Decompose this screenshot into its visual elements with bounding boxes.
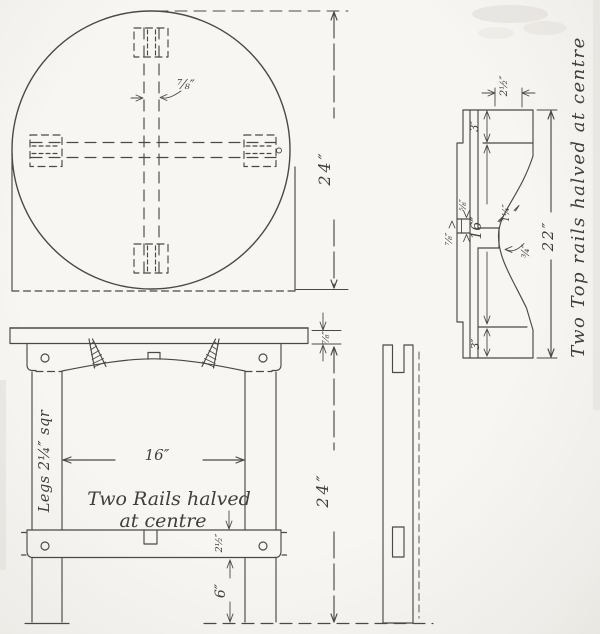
front-lower-rail-width-label: 2½″ [214,533,225,553]
rail-end-width-dim: 2½″ [482,76,535,107]
plan-diameter-dim: 24″ [156,11,348,290]
rail-thickness-label: ⅞″ [444,232,455,245]
leg-mortise [393,527,405,557]
front-top-board [10,328,308,344]
plan-cross-rails [31,28,276,272]
front-view: ⅞″ 24″ 16″ Two Rails halved at centre Le… [10,313,433,624]
front-leg-height-dim: 24″ [313,347,337,622]
front-leg-spacing-label: 16″ [145,446,170,464]
front-top-rail [27,344,281,372]
rail-detail-length-dims: 3″ 16″ 3″ [468,111,490,356]
front-lower-rail-width-dim: 2½″ [214,511,232,553]
plan-rail-thickness-dim: ⅞″ [131,78,195,101]
front-rails-note-line1: Two Rails halved [87,488,251,510]
plan-leg-squares [30,28,282,273]
table-working-drawing: ⅞″ 24″ [0,0,600,634]
front-lower-rail [22,530,287,558]
screw-hole [41,542,49,550]
rail-notch-width-label: 1¼″ [501,203,512,221]
rail-overall-dim: 22″ [537,110,557,358]
front-rail-floor-dim: 6″ [213,560,233,622]
rail-notch-depth-label: ¾″ [521,244,532,258]
rail-end-width-label: 2½″ [498,76,510,98]
rail-detail-view: 3″ 16″ 3″ 2½″ [444,36,589,358]
rail-notch-depth-dim: ¾″ [505,244,532,258]
front-leg-spacing-dim: 16″ [63,446,244,464]
rail-notch-width-dim: 1¼″ [498,203,519,222]
table-top-circle [12,11,290,289]
front-leg-height-label: 24″ [313,472,332,508]
front-top-thickness-label: ⅞″ [321,331,332,344]
rail-halving-label: ⅝″ [459,198,469,211]
front-rails-note-line2: at centre [119,510,206,532]
front-rail-floor-label: 6″ [213,583,229,598]
screw-hole [259,354,267,362]
screw-hole [259,542,267,550]
plan-diameter-label: 24″ [315,150,334,186]
rail-detail-caption: Two Top rails halved at centre [568,36,589,357]
rail-thickness-dim: ⅞″ [444,221,455,245]
front-legs-note: Legs 2¼″ sqr [37,409,53,513]
screw-hole [41,354,49,362]
rail-between-shoulders-label: 16″ [469,216,485,240]
rail-overall-label: 22″ [539,221,557,253]
paper-shading [0,0,600,570]
plan-view: ⅞″ 24″ [12,11,348,291]
rail-end-length-top-label: 3″ [468,120,481,132]
plan-rail-thickness-label: ⅞″ [177,78,195,93]
rail-end-peg [277,148,282,153]
rail-end-length-bottom-label: 3″ [469,338,482,350]
rail-halving-dim: ⅝″ [459,198,470,241]
leg-side-view [383,345,419,623]
drawing-sheet: ⅞″ 24″ [0,0,600,634]
